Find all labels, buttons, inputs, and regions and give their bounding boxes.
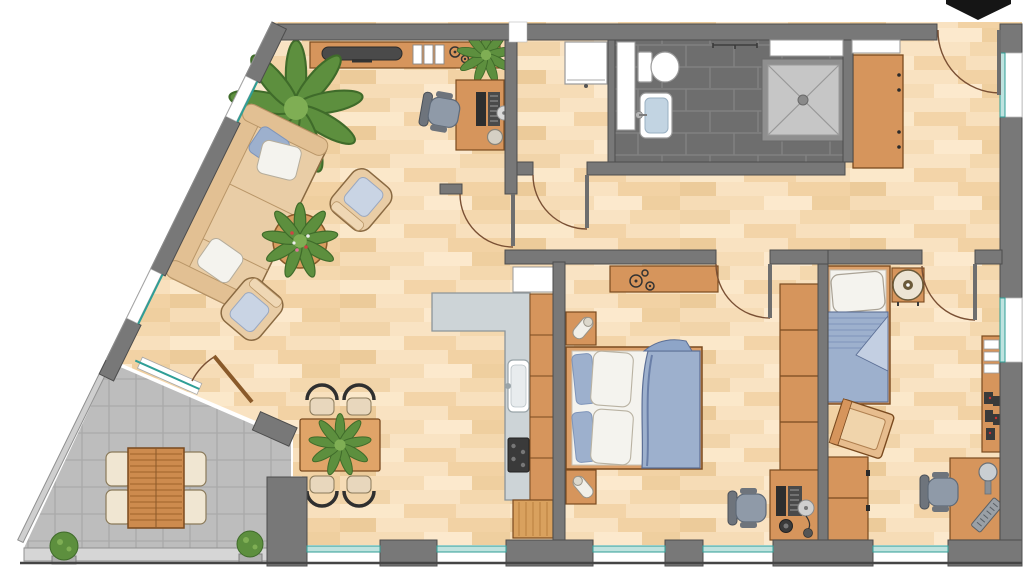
window: [437, 546, 506, 552]
office-chair: [920, 472, 958, 512]
window: [509, 22, 527, 42]
desk-lamp: [488, 130, 503, 145]
books: [984, 340, 999, 349]
wardrobe-column: [780, 284, 820, 470]
cabinet-stack: [828, 457, 870, 540]
wall: [440, 184, 462, 194]
wall: [843, 40, 853, 162]
wall: [770, 250, 828, 264]
round-side-table: [892, 268, 924, 306]
planter-bush: [50, 532, 78, 564]
window: [593, 546, 665, 552]
floor-plan-svg: [0, 0, 1024, 568]
washbasin: [636, 93, 673, 138]
hallway: [853, 55, 903, 168]
wall: [587, 162, 845, 175]
window: [1005, 53, 1022, 117]
wall: [608, 40, 615, 162]
books: [984, 352, 999, 361]
wall: [273, 24, 509, 40]
wall-shelf: [982, 336, 1001, 452]
dresser: [610, 266, 718, 292]
pillow: [590, 351, 634, 408]
pillow: [830, 271, 885, 313]
magazine-files: [413, 45, 444, 64]
window: [703, 546, 773, 552]
cooktop: [508, 438, 529, 472]
bedroom-desk: [770, 470, 820, 540]
books: [984, 364, 999, 373]
tv-stand: [352, 59, 372, 63]
terrace-table: [128, 448, 184, 528]
window-glass-line: [1000, 298, 1005, 362]
double-bed: [566, 340, 702, 469]
wall: [517, 162, 533, 175]
wall: [267, 477, 307, 566]
washing-machine: [565, 42, 607, 84]
window: [1005, 298, 1022, 362]
high-window: [770, 40, 843, 56]
window: [873, 546, 948, 552]
high-window: [852, 40, 900, 53]
cabinet-column: [530, 294, 553, 500]
wardrobe: [853, 55, 903, 168]
wall: [818, 264, 828, 540]
planter-bush: [237, 531, 263, 562]
computer: [476, 92, 486, 126]
office-chair: [728, 488, 766, 528]
computer: [776, 486, 786, 516]
window: [307, 546, 380, 552]
desk-lamp: [979, 463, 997, 481]
tall-white-cabinet: [617, 42, 635, 130]
wall: [975, 250, 1002, 264]
floor-plan-canvas: [0, 0, 1024, 568]
wall: [527, 24, 937, 40]
pillow: [590, 409, 634, 466]
bathroom: [615, 40, 845, 162]
wall: [553, 262, 565, 540]
single-bed: [826, 266, 890, 404]
tall-fridge-cabinet: [513, 267, 553, 292]
shower: [762, 59, 845, 141]
utility-room: [565, 42, 607, 88]
kitchen-sink: [505, 360, 529, 412]
base-cabinet: [513, 500, 553, 538]
workstation-desk: [456, 80, 511, 150]
wall: [505, 40, 517, 194]
wall: [828, 250, 922, 264]
toilet: [638, 52, 679, 82]
wall: [505, 250, 716, 264]
